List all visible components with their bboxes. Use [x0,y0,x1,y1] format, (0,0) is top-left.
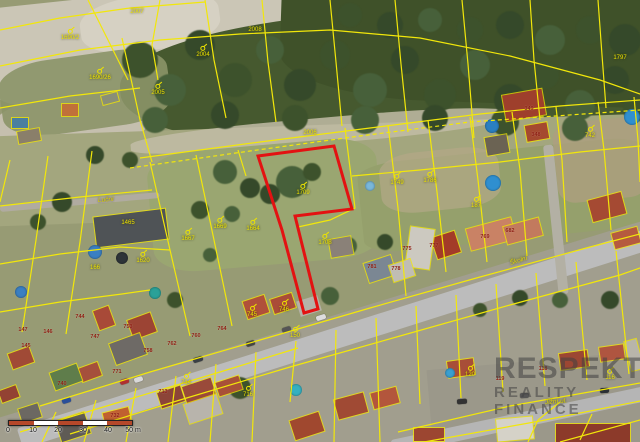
tree [167,292,183,308]
land-use-symbol-icon [292,327,297,332]
house-roof [0,385,20,402]
label-text: 714 [181,380,191,386]
parcel-number-label: 1669 [213,218,226,230]
label-text: 1620 [136,258,149,264]
label-text: 116 [605,375,615,381]
label-text: 120 [465,372,475,378]
tree [256,36,284,64]
tree [609,24,640,56]
parcel-number-label: 120 [465,366,475,378]
parcel-number-label: 2008 [248,27,261,33]
street-name-label: Luční [98,196,114,204]
label-text: 744 [75,315,84,321]
tree [418,8,442,32]
house-number-label: 777 [429,244,438,250]
tree [351,106,379,134]
parcel-number-label: 1690/2 [61,29,79,41]
land-use-symbol-icon [587,127,592,132]
scale-bar-segment [58,421,83,425]
parcel-number-label: 2005 [151,84,164,96]
label-text: 747 [90,335,99,341]
label-text: 775 [402,247,411,253]
house-number-label: 771 [112,370,121,376]
tree [377,234,393,250]
pool [116,252,128,264]
land-use-symbol-icon [427,172,432,177]
land-use-symbol-icon [394,174,399,179]
land-use-symbol-icon [155,84,160,89]
pool [88,245,102,259]
land-use-symbol-icon [467,366,472,371]
house-number-label: 349 [524,107,533,113]
car [457,399,467,405]
tree [512,290,528,306]
scale-bar [8,420,133,426]
house-roof [556,424,630,442]
tree [122,152,138,168]
label-text: 1667 [181,236,194,242]
land-use-symbol-icon [281,301,286,306]
house-roof [496,416,534,441]
tree [303,163,321,181]
tree [422,105,448,131]
tree [601,66,629,94]
label-text: 740 [57,382,66,388]
scale-bar-segment [83,421,108,425]
scale-bar-number: 0 [6,427,10,434]
tree [473,303,487,317]
land-use-symbol-icon [245,386,250,391]
label-text: 716 [243,392,253,398]
label-text: 146 [43,330,52,336]
label-text: 1708 [318,240,331,246]
tree [601,291,619,309]
house-roof [93,306,115,330]
parcel-number-label: 1667 [181,230,194,242]
tree [260,184,280,204]
tree [353,73,387,107]
label-text: 348 [531,133,540,139]
pool [624,109,640,125]
land-use-symbol-icon [473,197,478,202]
label-text: 1749 [390,180,403,186]
label-text: 1664 [246,226,259,232]
label-text: 2008 [248,27,261,33]
parcel-number-label: 187 [471,197,481,209]
tree [203,248,217,262]
tree [142,107,168,133]
house-number-label: 762 [167,342,176,348]
scale-bar-number: 20 [54,427,62,434]
parcel-number-label: 150 [290,327,300,339]
parcel-number-label: 1664 [246,220,259,232]
label-text: 166 [90,265,100,271]
tree [30,214,46,230]
parcel-number-label: 714 [181,374,191,386]
house-roof [12,118,28,128]
terrain-patch [296,295,322,317]
label-text: 1797 [613,55,626,61]
label-text: 145 [21,344,30,350]
house-roof [8,347,34,370]
parcel-number-label: 166 [90,265,100,271]
parcel-number-label: 1465 [121,220,134,226]
house-number-label: 744 [75,315,84,321]
house-roof [62,104,78,116]
label-text: 1669 [213,224,226,230]
house-roof [109,333,147,365]
land-use-symbol-icon [183,374,188,379]
land-use-symbol-icon [140,252,145,257]
house-number-label: 145 [21,344,30,350]
house-number-label: 760 [191,334,200,340]
house-number-label: 146 [43,330,52,336]
car [520,393,529,399]
label-text: 760 [191,334,200,340]
tree [457,17,483,43]
label-text: 758 [143,349,152,355]
land-use-symbol-icon [217,218,222,223]
land-use-symbol-icon [249,306,254,311]
label-text: 777 [429,244,438,250]
pool [15,286,27,298]
label-text: 2005 [151,90,164,96]
parcel-number-label: 742 [585,127,595,139]
parcel-number-label: 2007 [130,9,143,15]
house-number-label: 119 [496,377,505,383]
land-use-symbol-icon [607,369,612,374]
parcel-number-label: 1709 [296,184,309,196]
parcel-number-label: 1786 [423,172,436,184]
scale-bar-segment [9,421,34,425]
label-text: 349 [524,107,533,113]
house-number-label: 764 [217,327,226,333]
house-number-label: 682 [505,229,514,235]
land-use-symbol-icon [322,234,327,239]
house-number-label: 769 [480,235,489,241]
house-number-label: 348 [531,133,540,139]
scale-bar-number: 40 [104,427,112,434]
label-text: 753 [123,325,132,331]
tree [52,192,72,212]
label-text: 769 [480,235,489,241]
pool [290,384,302,396]
label-text: 147 [18,328,27,334]
label-text: 2004 [196,52,209,58]
label-text: 1709 [296,190,309,196]
scale-bar-segment [107,421,132,425]
tree [282,105,308,131]
land-use-symbol-icon [67,29,72,34]
label-text: 118 [539,367,548,373]
house-number-label: 147 [18,328,27,334]
house-number-label: 781 [367,265,376,271]
label-text: 778 [391,267,400,273]
house-number-label: 758 [143,349,152,355]
tree [531,61,559,89]
pool [365,181,375,191]
tree [377,12,403,38]
tree [218,63,252,97]
parcel-number-label: 116 [605,369,615,381]
tree [535,25,565,55]
tree [552,292,568,308]
label-text: 713 [158,390,167,396]
tree [211,101,239,129]
pool [149,287,161,299]
house-number-label: 775 [402,247,411,253]
label-text: 119 [496,377,505,383]
tree [460,50,490,80]
scale-bar-number: 30 [79,427,87,434]
scale-bar-segment [34,421,59,425]
house-roof [485,134,510,156]
parcel-number-label: 745 [247,306,257,318]
parcel-number-label: 1797 [613,55,626,61]
tree [284,69,316,101]
land-use-symbol-icon [300,184,305,189]
parcel-number-label: 716 [243,386,253,398]
label-text: 1690/26 [89,75,111,81]
parcel-number-label: 1749 [390,174,403,186]
label-text: 764 [217,327,226,333]
label-text: 187 [471,203,481,209]
tree [191,201,209,219]
map-canvas[interactable]: 17091664170820042005200720081690/21690/2… [0,0,640,442]
tree [496,11,524,39]
tree [240,178,260,198]
land-use-symbol-icon [200,46,205,51]
tree [321,287,339,305]
label-text: 762 [167,342,176,348]
tree [86,146,104,164]
label-text: 682 [505,229,514,235]
label-text: 2006 [303,130,316,136]
label-text: 1465 [121,220,134,226]
land-use-symbol-icon [185,230,190,235]
tree [320,40,350,70]
house-number-label: 713 [158,390,167,396]
label-text: 746 [279,307,289,313]
house-number-label: 740 [57,382,66,388]
house-roof [414,428,444,441]
tree [576,16,604,44]
house-number-label: 747 [90,335,99,341]
label-text: 745 [247,312,257,318]
parcel-number-label: 1690/26 [89,69,111,81]
parcel-number-label: 2006 [303,130,316,136]
house-number-label: 753 [123,325,132,331]
car [600,388,609,394]
parcel-number-label: 746 [279,301,289,313]
house-roof [329,236,354,258]
pool [445,368,455,378]
label-text: 150 [290,333,300,339]
parcel-number-label: 1708 [318,234,331,246]
scale-bar-number: 50 m [125,427,141,434]
label-text: 781 [367,265,376,271]
tree [391,46,419,74]
tree [338,3,362,27]
label-text: 771 [112,370,121,376]
land-use-symbol-icon [97,69,102,74]
land-use-symbol-icon [250,220,255,225]
parcel-number-label: 1620 [136,252,149,264]
tree [122,42,158,78]
pool [485,119,499,133]
label-text: 2007 [130,9,143,15]
house-number-label: 118 [539,367,548,373]
label-text: 1786 [423,178,436,184]
label-text: 1690/2 [61,35,79,41]
label-text: 742 [585,133,595,139]
house-number-label: 778 [391,267,400,273]
parcel-number-label: 2004 [196,46,209,58]
scale-bar-number: 10 [29,427,37,434]
tree [213,160,237,184]
pool [485,175,501,191]
